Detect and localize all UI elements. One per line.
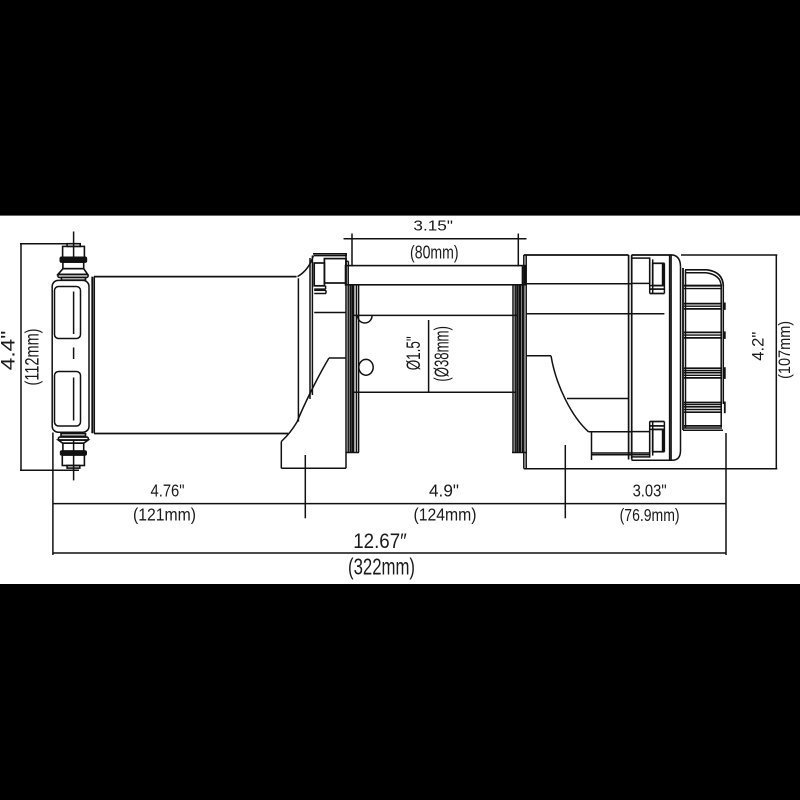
svg-text:(Ø38mm): (Ø38mm)	[431, 326, 453, 382]
svg-text:Ø1.5": Ø1.5"	[403, 336, 425, 370]
svg-text:12.67″: 12.67″	[353, 529, 407, 553]
svg-text:3.03": 3.03"	[633, 481, 667, 501]
svg-text:4.4": 4.4"	[0, 331, 19, 371]
svg-text:4.2": 4.2"	[749, 332, 768, 361]
svg-text:(107mm): (107mm)	[775, 321, 794, 379]
svg-text:4.76": 4.76"	[151, 481, 185, 501]
svg-text:4.9": 4.9"	[429, 481, 459, 501]
svg-text:(76.9mm): (76.9mm)	[620, 505, 680, 525]
svg-text:(112mm): (112mm)	[23, 329, 44, 386]
svg-text:(121mm): (121mm)	[133, 505, 196, 525]
svg-text:(124mm): (124mm)	[414, 505, 477, 525]
svg-text:(322mm): (322mm)	[348, 554, 415, 580]
svg-text:(80mm): (80mm)	[410, 242, 459, 263]
svg-text:3.15": 3.15"	[413, 217, 453, 234]
